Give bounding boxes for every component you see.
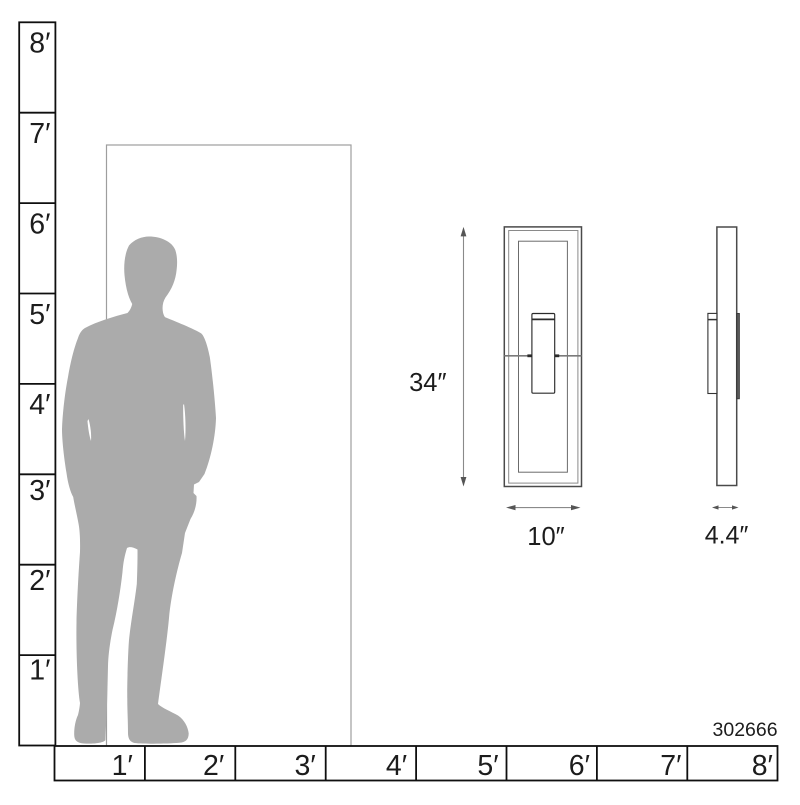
svg-text:3′: 3′: [29, 475, 50, 507]
svg-text:4′: 4′: [29, 389, 50, 421]
svg-text:8′: 8′: [29, 28, 50, 60]
svg-text:4′: 4′: [386, 750, 407, 782]
svg-text:8′: 8′: [752, 750, 773, 782]
svg-text:2′: 2′: [29, 565, 50, 597]
svg-text:10″: 10″: [527, 523, 564, 551]
svg-text:7′: 7′: [29, 118, 50, 150]
svg-text:5′: 5′: [477, 750, 498, 782]
svg-text:1′: 1′: [112, 750, 133, 782]
svg-text:6′: 6′: [29, 208, 50, 240]
svg-text:4.4″: 4.4″: [705, 522, 749, 550]
svg-text:6′: 6′: [569, 750, 590, 782]
svg-text:3′: 3′: [294, 750, 315, 782]
svg-text:2′: 2′: [203, 750, 224, 782]
svg-text:7′: 7′: [660, 750, 681, 782]
svg-text:302666: 302666: [713, 719, 778, 741]
svg-text:5′: 5′: [29, 299, 50, 331]
svg-text:34″: 34″: [409, 369, 446, 397]
svg-text:1′: 1′: [29, 655, 50, 687]
